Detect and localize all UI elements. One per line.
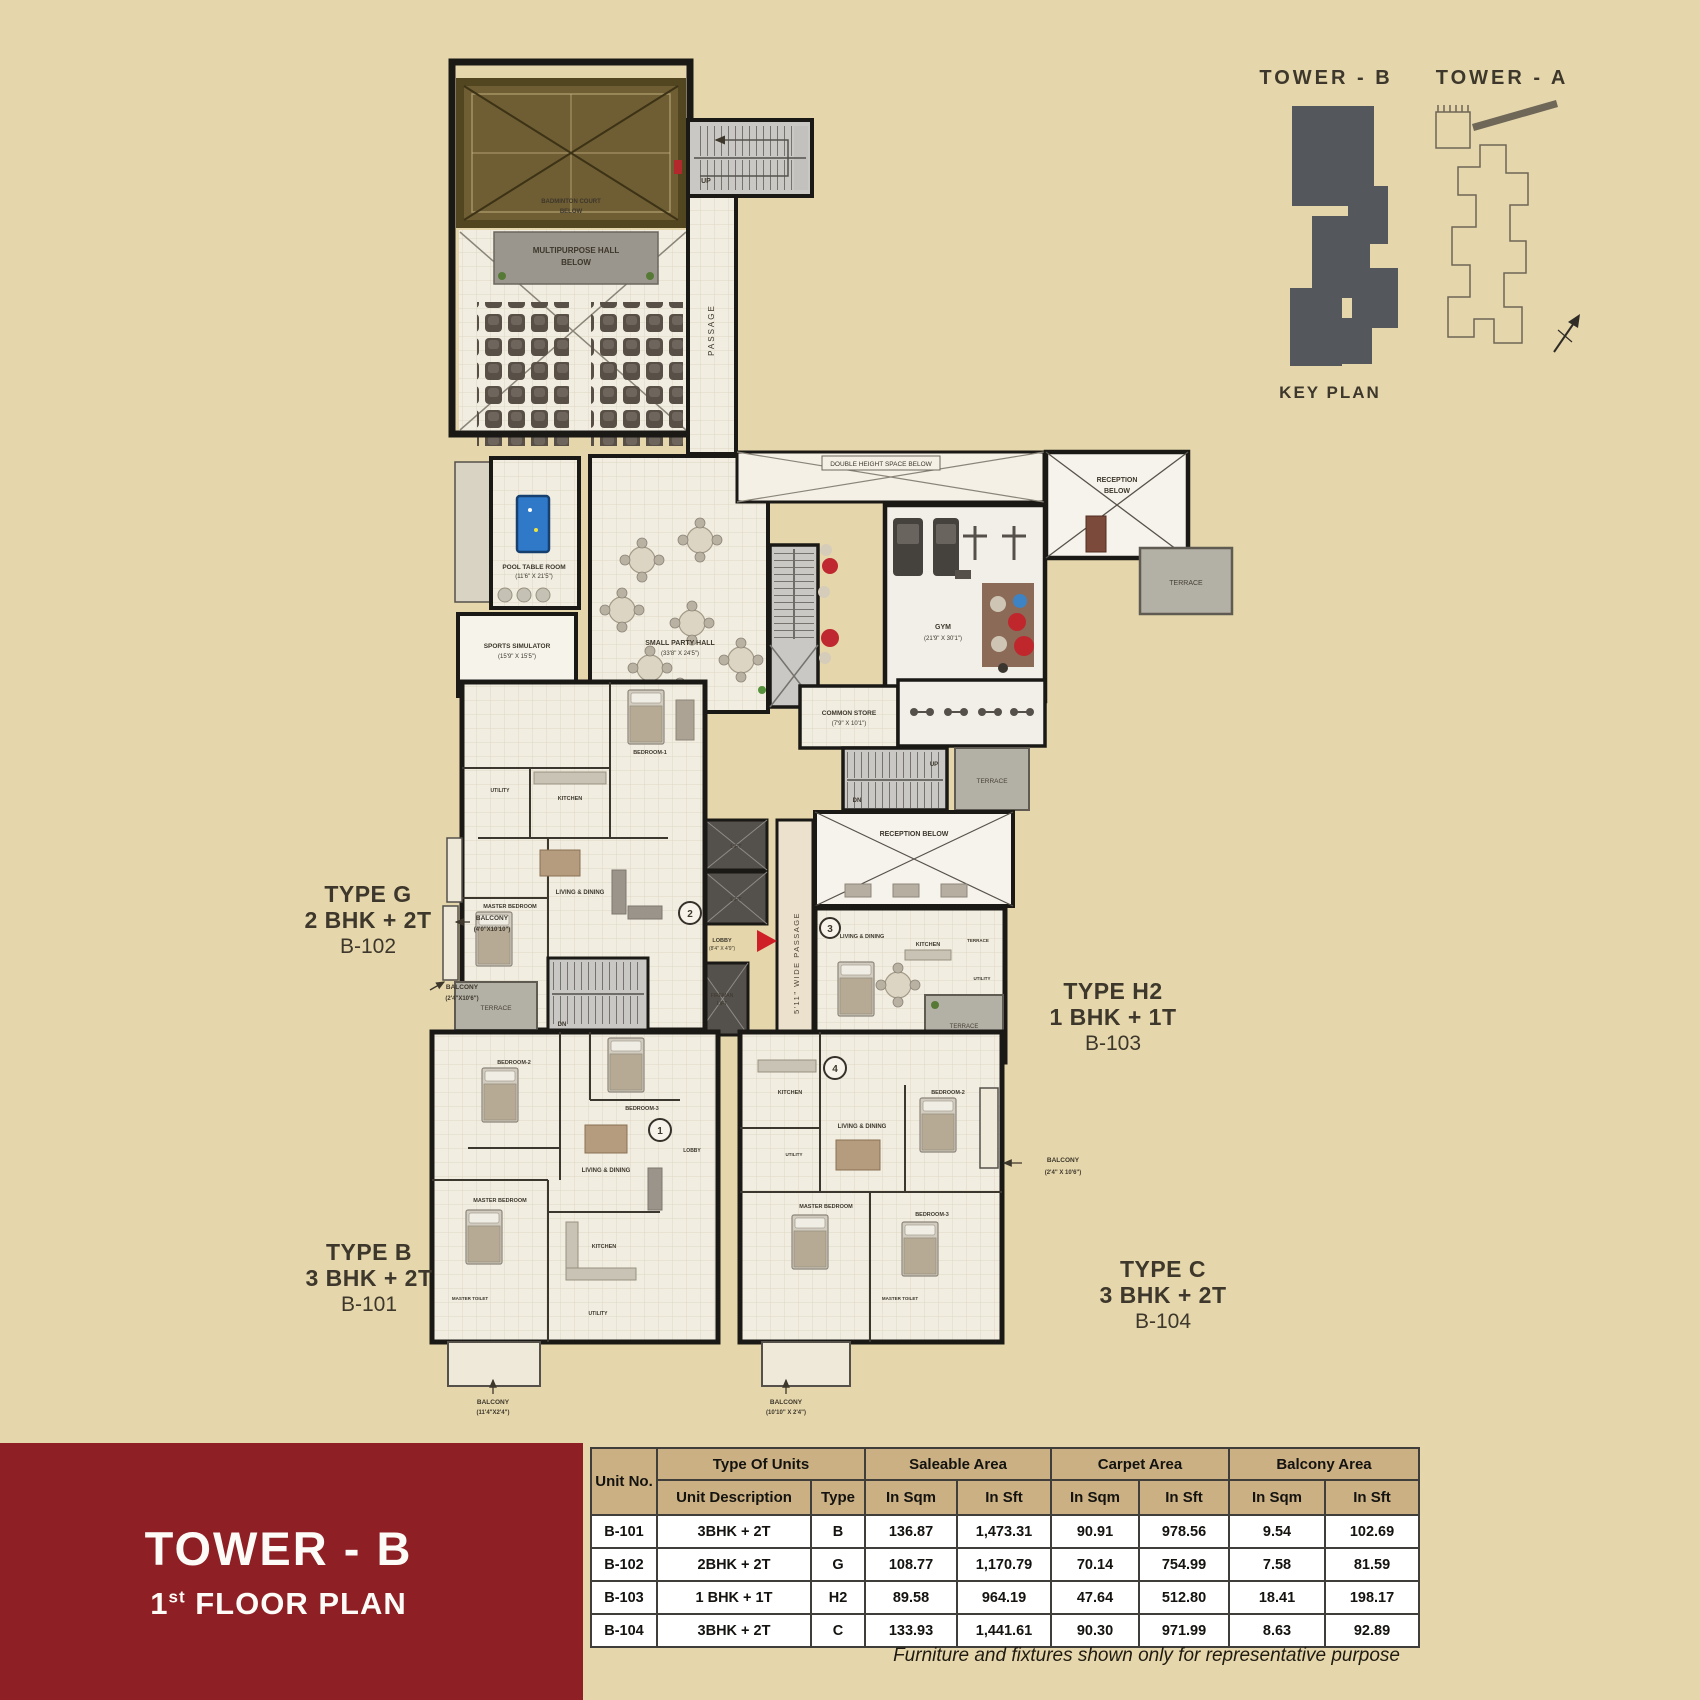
b101-living-label: LIVING & DINING (582, 1168, 631, 1174)
b101-balcony-strip (448, 1342, 540, 1386)
cell: 754.99 (1139, 1548, 1229, 1581)
callout-type-b: TYPE B 3 BHK + 2T B-101 (305, 1239, 432, 1316)
b104-master-label: MASTER BEDROOM (799, 1204, 853, 1210)
cell: 198.17 (1325, 1581, 1419, 1614)
sports-simulator-dims: (15'9" X 15'5") (498, 654, 536, 660)
tower-a-outline (1436, 100, 1558, 343)
type-g-config: 2 BHK + 2T (304, 907, 431, 933)
reception-top-label2: BELOW (1104, 488, 1130, 495)
col-unit-no: Unit No. (591, 1448, 657, 1515)
up-label: UP (701, 178, 711, 185)
lobby-dims-core: (8'4" X 4'9") (709, 946, 735, 952)
balcony1-dims: (4'0"X10'10") (474, 927, 511, 933)
title-banner: TOWER - B 1st FLOOR PLAN (0, 1443, 583, 1700)
fireman-lift-label: FIREMAN (711, 993, 734, 999)
type-g-unit: B-102 (340, 935, 396, 958)
cell: 92.89 (1325, 1614, 1419, 1647)
b104-balcony-strip (762, 1342, 850, 1386)
footnote: Furniture and fixtures shown only for re… (893, 1645, 1400, 1667)
table-row-b103: B-103 1 BHK + 1T H2 89.58 964.19 47.64 5… (591, 1581, 1419, 1614)
b104-utility-label: UTILITY (786, 1152, 803, 1157)
reception-top: RECEPTION BELOW (1046, 452, 1188, 558)
b103-utility-label: UTILITY (974, 976, 991, 981)
cell: 89.58 (865, 1581, 957, 1614)
unit-b102: BEDROOM-1 KITCHEN UTILITY LIVING & DININ… (443, 682, 705, 1030)
b102-kitchen-label: KITCHEN (558, 796, 582, 802)
stair-mid: DN UP (843, 748, 947, 810)
cell: B (811, 1515, 865, 1548)
cell: 70.14 (1051, 1548, 1139, 1581)
unit-mark-4: 4 (832, 1064, 838, 1075)
gym-annex (898, 680, 1045, 746)
b103-terrace-label: TERRACE (950, 1024, 979, 1030)
cell: C (811, 1614, 865, 1647)
type-c-unit: B-104 (1135, 1310, 1191, 1333)
exercise-balls (818, 544, 839, 664)
common-store-label: COMMON STORE (822, 710, 877, 717)
b104-kitchen-label: KITCHEN (778, 1090, 802, 1096)
type-c-config: 3 BHK + 2T (1099, 1282, 1226, 1308)
pool-table-room: POOL TABLE ROOM (11'6" X 21'5") (455, 458, 579, 608)
multipurpose-hall-block: BADMINTON COURT BELOW MULTIPURPOSE HALL … (452, 62, 690, 446)
stair-top: UP (688, 120, 812, 196)
b103-terrace2-label: TERRACE (967, 938, 989, 943)
b103-kitchen-label: KITCHEN (916, 942, 940, 948)
b102-utility-label: UTILITY (491, 788, 511, 794)
type-b-label: TYPE B (326, 1239, 412, 1265)
col-saleable-sqm: In Sqm (865, 1480, 957, 1515)
type-h2-unit: B-103 (1085, 1032, 1141, 1055)
unit-b101: BEDROOM-2 BEDROOM-3 1 LOBBY LIVING & DIN… (432, 1032, 718, 1386)
col-balcony-sqm: In Sqm (1229, 1480, 1325, 1515)
balcony1-label: BALCONY (476, 915, 509, 922)
type-h2-config: 1 BHK + 1T (1049, 1004, 1176, 1030)
key-plan-title: KEY PLAN (1279, 383, 1381, 402)
cell: 108.77 (865, 1548, 957, 1581)
cell: B-104 (591, 1614, 657, 1647)
side-balcony-dims: (2'4" X 10'6") (1045, 1170, 1082, 1176)
b101-kitchen-label: KITCHEN (592, 1244, 616, 1250)
type-c-label: TYPE C (1120, 1256, 1206, 1282)
area-table: Unit No. Type Of Units Saleable Area Car… (590, 1447, 1420, 1648)
terrace-mid-label: TERRACE (976, 778, 1008, 785)
b104-side-balcony-strip (980, 1088, 998, 1168)
col-type-of-units: Type Of Units (657, 1448, 865, 1480)
cell: 3BHK + 2T (657, 1614, 811, 1647)
cell: 133.93 (865, 1614, 957, 1647)
b102-terrace-label: TERRACE (480, 1005, 512, 1012)
cell: 978.56 (1139, 1515, 1229, 1548)
stage: MULTIPURPOSE HALL BELOW (494, 232, 658, 284)
badminton-court-label: BADMINTON COURT (541, 199, 601, 205)
b101-bedroom3-label: BEDROOM-3 (625, 1106, 659, 1112)
lift-label-1: LIFT (730, 844, 742, 850)
b104-living-label: LIVING & DINING (838, 1124, 887, 1130)
cell: 81.59 (1325, 1548, 1419, 1581)
callout-type-h2: TYPE H2 1 BHK + 1T B-103 (1049, 978, 1176, 1055)
cell: 102.69 (1325, 1515, 1419, 1548)
b101-master-label: MASTER BEDROOM (473, 1198, 527, 1204)
col-balcony-sft: In Sft (1325, 1480, 1419, 1515)
callout-type-g: TYPE G 2 BHK + 2T B-102 (304, 881, 431, 958)
cell: 964.19 (957, 1581, 1051, 1614)
north-arrow-icon (1554, 314, 1580, 352)
cell: 971.99 (1139, 1614, 1229, 1647)
side-balcony-label: BALCONY (1047, 1157, 1080, 1164)
multipurpose-hall-label2: BELOW (561, 258, 591, 267)
unit-mark-3: 3 (827, 924, 833, 935)
b104-balcony-label: BALCONY (770, 1399, 803, 1406)
passage-label: PASSAGE (707, 304, 716, 356)
gym-dims: (21'9" X 30'1") (924, 636, 962, 642)
table-row-b101: B-101 3BHK + 2T B 136.87 1,473.31 90.91 … (591, 1515, 1419, 1548)
cell: 9.54 (1229, 1515, 1325, 1548)
floor-plan-sheet: TOWER - B TOWER - A KEY PLAN (0, 0, 1700, 1700)
cell: 7.58 (1229, 1548, 1325, 1581)
cell: H2 (811, 1581, 865, 1614)
common-store: COMMON STORE (7'9" X 10'1") (800, 686, 898, 748)
cell: 90.30 (1051, 1614, 1139, 1647)
multipurpose-hall-label: MULTIPURPOSE HALL (533, 246, 620, 255)
tower-b-silhouette (1290, 106, 1398, 366)
passage-corridor: PASSAGE (688, 196, 736, 454)
b102-living-label: LIVING & DINING (556, 890, 605, 896)
party-hall-label: SMALL PARTY HALL (645, 640, 715, 647)
b103-living-label: LIVING & DINING (840, 934, 885, 940)
badminton-court: BADMINTON COURT BELOW (456, 78, 686, 228)
key-plan: TOWER - B TOWER - A KEY PLAN (1259, 67, 1580, 402)
cell: B-103 (591, 1581, 657, 1614)
col-carpet-sqm: In Sqm (1051, 1480, 1139, 1515)
col-unit-description: Unit Description (657, 1480, 811, 1515)
lobby-label-core: LOBBY (712, 938, 732, 944)
lift-label-2: LIFT (730, 897, 742, 903)
table-row-b102: B-102 2BHK + 2T G 108.77 1,170.79 70.14 … (591, 1548, 1419, 1581)
b104-bedroom3-label: BEDROOM-3 (915, 1212, 949, 1218)
unit-mark-1: 1 (657, 1126, 663, 1137)
balcony2-label: BALCONY (446, 984, 479, 991)
pool-room-dims: (11'6" X 21'5") (515, 574, 552, 580)
col-carpet-sft: In Sft (1139, 1480, 1229, 1515)
banner-floor-line: 1st FLOOR PLAN (150, 1586, 406, 1622)
banner-title: TOWER - B (145, 1521, 413, 1576)
dn-label: DN (853, 798, 862, 804)
party-hall-dims: (33'8" X 24'5") (661, 651, 699, 657)
col-carpet-area: Carpet Area (1051, 1448, 1229, 1480)
b102-master-label: MASTER BEDROOM (483, 904, 537, 910)
reception-mid: RECEPTION BELOW (815, 812, 1013, 906)
col-balcony-area: Balcony Area (1229, 1448, 1419, 1480)
double-height-strip: DOUBLE HEIGHT SPACE BELOW (737, 452, 1044, 502)
b104-balcony-dims: (10'10" X 2'4") (766, 1410, 806, 1416)
pool-room-label: POOL TABLE ROOM (502, 564, 565, 571)
cell: B-102 (591, 1548, 657, 1581)
b101-lobby-label: LOBBY (683, 1148, 701, 1154)
b102-stair: DN (548, 958, 648, 1030)
table-row-b104: B-104 3BHK + 2T C 133.93 1,441.61 90.30 … (591, 1614, 1419, 1647)
cell: G (811, 1548, 865, 1581)
sports-simulator-label: SPORTS SIMULATOR (484, 643, 551, 650)
terrace-mid: TERRACE (955, 748, 1029, 810)
stair-mid-right (770, 545, 818, 707)
col-saleable-area: Saleable Area (865, 1448, 1051, 1480)
gym: GYM (21'9" X 30'1") (885, 505, 1045, 701)
type-g-label: TYPE G (324, 881, 411, 907)
terrace-right: TERRACE (1140, 548, 1232, 614)
b102-bedroom1-label: BEDROOM-1 (633, 750, 667, 756)
gym-label: GYM (935, 624, 951, 631)
unit-mark-2: 2 (687, 909, 693, 920)
b101-master-toilet-label: MASTER TOILET (452, 1296, 488, 1301)
cell: 1,473.31 (957, 1515, 1051, 1548)
cell: 90.91 (1051, 1515, 1139, 1548)
b101-bedroom2-label: BEDROOM-2 (497, 1060, 531, 1066)
reception-mid-label: RECEPTION BELOW (880, 831, 949, 838)
cell: 512.80 (1139, 1581, 1229, 1614)
entry-arrow-1 (757, 930, 777, 952)
type-b-config: 3 BHK + 2T (305, 1265, 432, 1291)
reception-top-label: RECEPTION (1097, 477, 1138, 484)
cell: 2BHK + 2T (657, 1548, 811, 1581)
wide-passage-label: 5'11" WIDE PASSAGE (792, 912, 801, 1014)
type-b-unit: B-101 (341, 1293, 397, 1316)
cell: B-101 (591, 1515, 657, 1548)
b104-bedroom2-label: BEDROOM-2 (931, 1090, 965, 1096)
unit-b104: KITCHEN 4 LIVING & DINING BEDROOM-2 UTIL… (740, 1032, 1002, 1386)
b102-stair-dn: DN (558, 1022, 567, 1028)
cell: 8.63 (1229, 1614, 1325, 1647)
cell: 18.41 (1229, 1581, 1325, 1614)
cell: 1 BHK + 1T (657, 1581, 811, 1614)
key-plan-tower-a-label: TOWER - A (1436, 67, 1569, 89)
fireman-lift-label2: LIFT (717, 1001, 727, 1007)
double-height-label: DOUBLE HEIGHT SPACE BELOW (830, 461, 932, 468)
terrace-right-label: TERRACE (1169, 580, 1203, 587)
up-label-mid: UP (930, 762, 938, 768)
cell: 1,441.61 (957, 1614, 1051, 1647)
b101-balcony-label: BALCONY (477, 1399, 510, 1406)
badminton-court-label2: BELOW (560, 209, 583, 215)
key-plan-tower-b-label: TOWER - B (1259, 67, 1392, 89)
cell: 1,170.79 (957, 1548, 1051, 1581)
callout-type-c: TYPE C 3 BHK + 2T B-104 (1099, 1256, 1226, 1333)
cell: 3BHK + 2T (657, 1515, 811, 1548)
cell: 136.87 (865, 1515, 957, 1548)
b101-utility-label: UTILITY (589, 1311, 609, 1317)
type-h2-label: TYPE H2 (1063, 978, 1162, 1004)
b104-master-toilet-label: MASTER TOILET (882, 1296, 918, 1301)
b101-balcony-dims: (11'4"X2'4") (477, 1410, 510, 1416)
common-store-dims: (7'9" X 10'1") (832, 721, 867, 727)
col-saleable-sft: In Sft (957, 1480, 1051, 1515)
cell: 47.64 (1051, 1581, 1139, 1614)
b104-side-balcony-callout: BALCONY (2'4" X 10'6") (1004, 1157, 1081, 1176)
balcony2-dims: (2'4"X10'6") (445, 996, 478, 1002)
col-type: Type (811, 1480, 865, 1515)
